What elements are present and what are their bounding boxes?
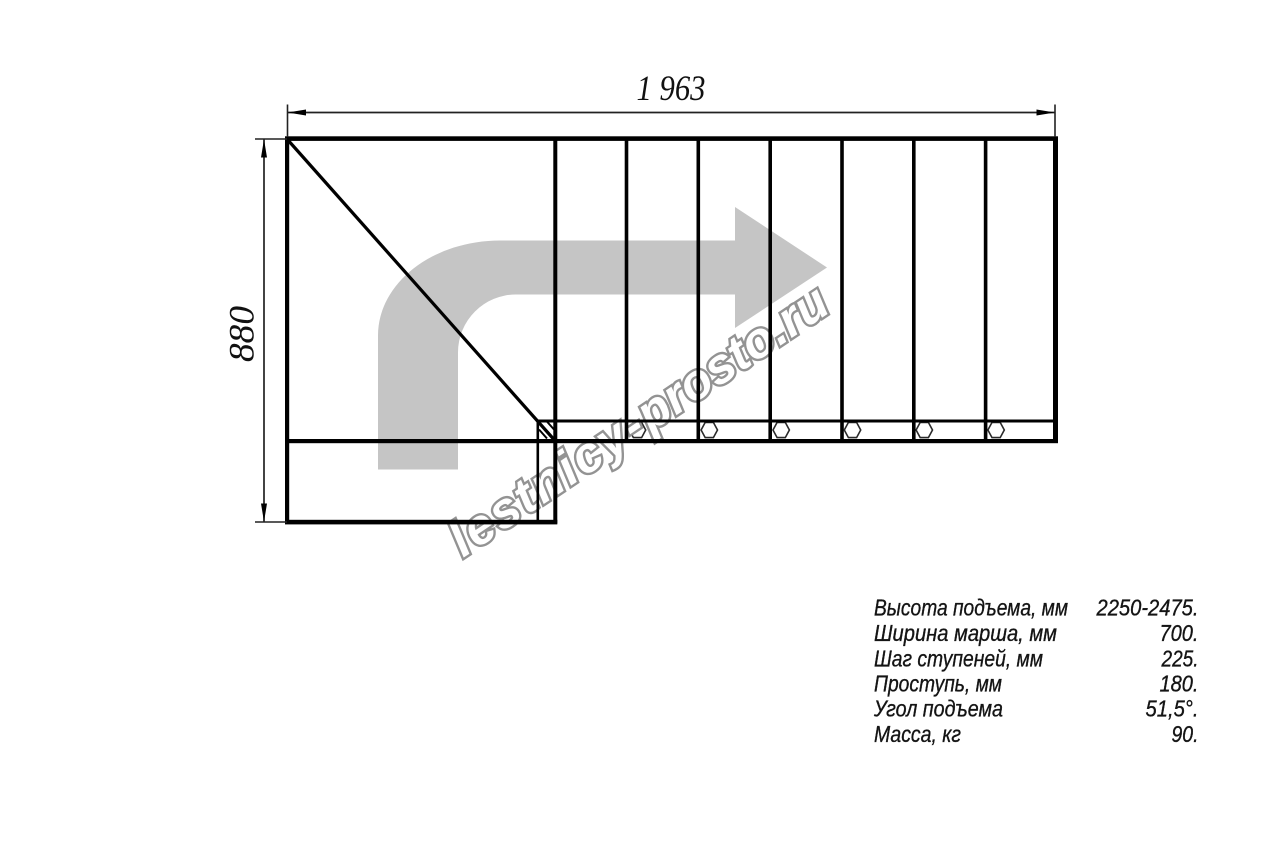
svg-text:90.: 90. (1172, 721, 1199, 747)
svg-text:Проступь, мм: Проступь, мм (874, 671, 1002, 697)
svg-text:225.: 225. (1161, 645, 1199, 671)
svg-text:Шаг ступеней, мм: Шаг ступеней, мм (874, 645, 1043, 671)
svg-text:Ширина марша, мм: Ширина марша, мм (874, 620, 1057, 646)
svg-text:180.: 180. (1160, 671, 1199, 697)
svg-text:880: 880 (222, 306, 262, 362)
svg-text:2250-2475.: 2250-2475. (1096, 595, 1199, 621)
svg-text:Масса, кг: Масса, кг (874, 721, 961, 747)
svg-text:Угол подъема: Угол подъема (873, 696, 1003, 722)
svg-text:51,5°.: 51,5°. (1146, 696, 1199, 722)
svg-text:700.: 700. (1160, 620, 1199, 646)
svg-text:1 963: 1 963 (637, 68, 706, 108)
svg-text:Высота подъема, мм: Высота подъема, мм (874, 595, 1068, 621)
